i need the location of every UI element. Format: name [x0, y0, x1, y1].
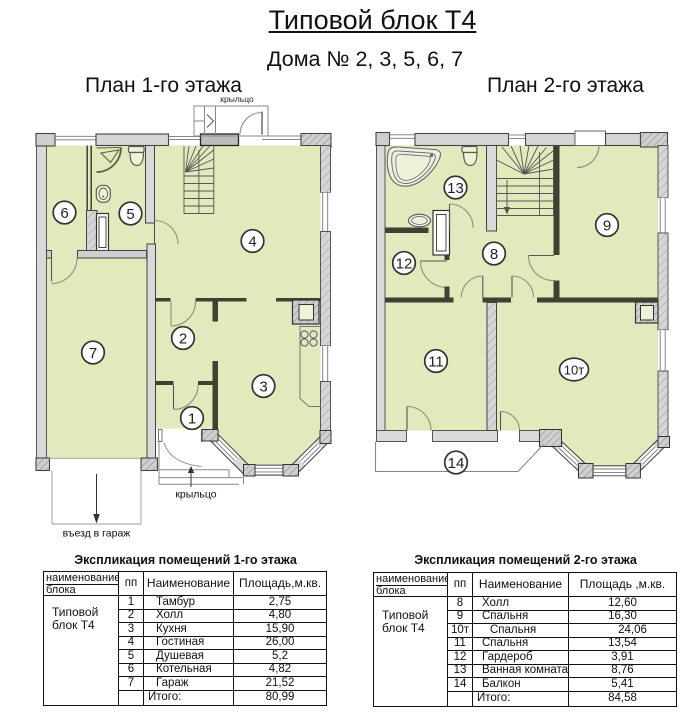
svg-text:10т: 10т — [564, 362, 584, 377]
svg-text:крыльцо: крыльцо — [175, 489, 216, 501]
svg-text:8: 8 — [490, 246, 498, 263]
svg-text:2: 2 — [179, 330, 187, 347]
svg-text:3: 3 — [259, 378, 267, 395]
svg-text:4: 4 — [248, 233, 256, 250]
svg-text:въезд в гараж: въезд в гараж — [63, 528, 131, 540]
svg-text:13: 13 — [447, 180, 464, 197]
svg-text:крыльцо: крыльцо — [220, 94, 254, 104]
svg-text:7: 7 — [89, 345, 97, 362]
svg-text:14: 14 — [448, 455, 465, 472]
svg-text:9: 9 — [603, 217, 611, 234]
svg-text:6: 6 — [60, 205, 68, 222]
svg-text:1: 1 — [188, 410, 196, 427]
svg-text:12: 12 — [396, 255, 413, 272]
svg-text:11: 11 — [428, 353, 444, 370]
svg-text:5: 5 — [126, 206, 134, 223]
